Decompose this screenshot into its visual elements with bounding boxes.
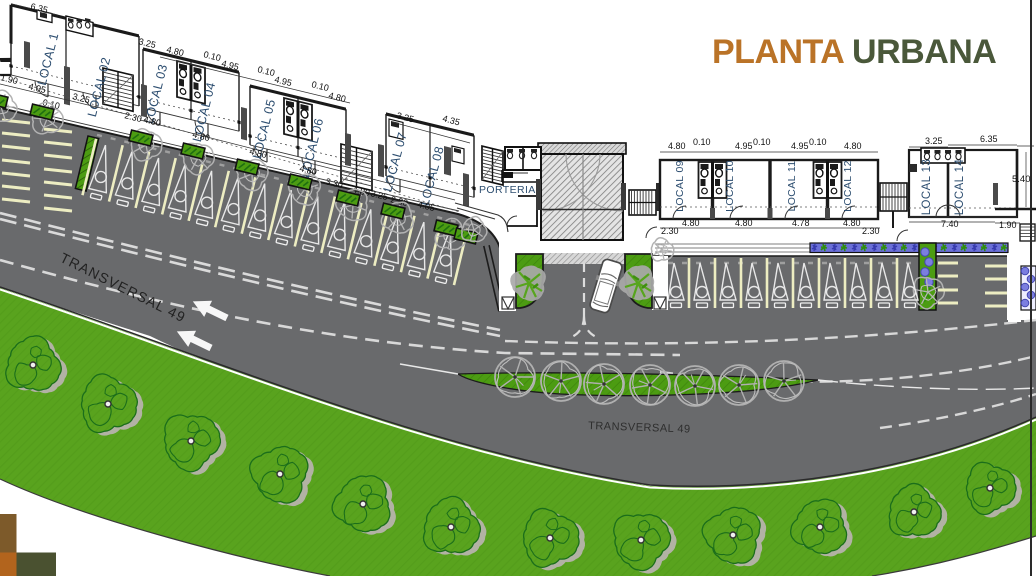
svg-text:4.95: 4.95 [735,141,753,151]
svg-text:4.80: 4.80 [668,141,686,151]
svg-text:0.10: 0.10 [809,137,827,147]
svg-text:4.80: 4.80 [682,218,700,228]
svg-text:LOCAL 10: LOCAL 10 [724,160,736,212]
svg-text:4.95: 4.95 [791,141,809,151]
svg-text:3.25: 3.25 [925,136,943,146]
svg-text:LOCAL 13: LOCAL 13 [921,159,933,215]
svg-text:PORTERIA: PORTERIA [479,184,536,196]
svg-text:4.80: 4.80 [735,218,753,228]
svg-text:4.78: 4.78 [792,218,810,228]
svg-text:6.35: 6.35 [980,134,998,144]
svg-text:1.90: 1.90 [999,220,1017,230]
svg-text:0.10: 0.10 [693,137,711,147]
svg-text:2.30: 2.30 [862,226,880,236]
svg-text:LOCAL 11: LOCAL 11 [786,160,798,211]
svg-text:5.40: 5.40 [1012,174,1031,185]
svg-text:4.80: 4.80 [844,141,862,151]
svg-text:2.30: 2.30 [661,226,679,236]
svg-text:LOCAL 14: LOCAL 14 [954,159,966,216]
svg-text:7.40: 7.40 [941,219,959,229]
svg-text:0.10: 0.10 [753,137,771,147]
svg-text:PLANTA URBANA: PLANTA URBANA [712,33,996,71]
svg-text:LOCAL 09: LOCAL 09 [674,160,686,212]
svg-text:LOCAL 12: LOCAL 12 [842,160,854,212]
svg-text:4.80: 4.80 [843,218,861,228]
